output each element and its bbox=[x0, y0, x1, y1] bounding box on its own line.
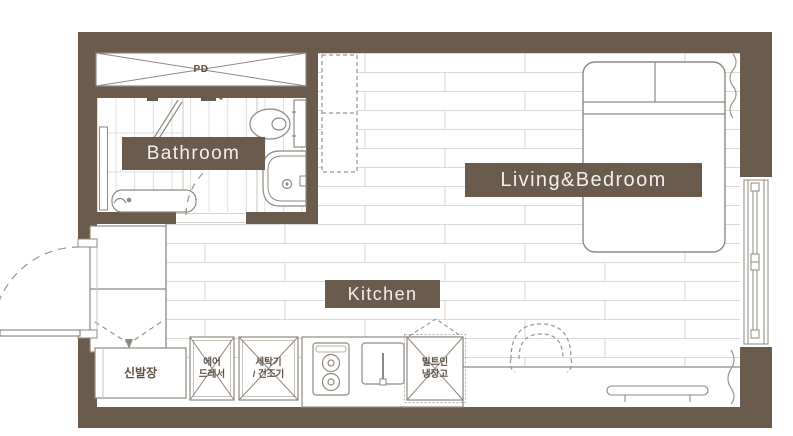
entry-closet bbox=[90, 226, 166, 352]
air-dresser-label-line1: 에어 bbox=[203, 357, 220, 368]
bath-shelf bbox=[100, 127, 108, 210]
wall-bottom bbox=[78, 407, 772, 428]
pd-duct-label: PD bbox=[96, 53, 306, 86]
built-in-fridge-label: 빌트인 냉장고 bbox=[407, 337, 463, 400]
entrance-door-swing bbox=[0, 247, 80, 310]
wall-top bbox=[78, 32, 772, 53]
washbasin bbox=[263, 151, 306, 206]
cooktop bbox=[313, 343, 349, 395]
air-dresser-label: 에어 드레서 bbox=[190, 337, 234, 400]
window bbox=[740, 177, 772, 347]
washer-dryer-label: 세탁기 / 건조기 bbox=[239, 337, 298, 400]
ceiling-unit bbox=[322, 55, 357, 172]
wall-bathroom-right bbox=[306, 32, 318, 224]
air-dresser-label-line2: 드레서 bbox=[199, 369, 225, 380]
wall-bathroom-bottom-left bbox=[78, 212, 176, 224]
built-in-fridge-label-line1: 빌트인 bbox=[422, 357, 448, 368]
bath-bench bbox=[112, 190, 196, 212]
kitchen-sink bbox=[362, 343, 404, 385]
washer-dryer-label-line1: 세탁기 bbox=[255, 357, 281, 368]
floorplan: PD Bathroom Living&Bedroom Kitchen 신발장 에… bbox=[0, 0, 793, 436]
bathroom-label-badge: Bathroom bbox=[122, 137, 265, 170]
entrance-door bbox=[0, 239, 97, 338]
living-bedroom-label-badge: Living&Bedroom bbox=[465, 163, 702, 197]
kitchen-label-badge: Kitchen bbox=[325, 280, 440, 308]
built-in-fridge-label-line2: 냉장고 bbox=[422, 369, 448, 380]
wall-right-lower bbox=[740, 347, 772, 428]
wall-right-upper bbox=[740, 32, 772, 177]
washer-dryer-label-line2: / 건조기 bbox=[253, 369, 285, 380]
shoe-cabinet-label: 신발장 bbox=[95, 348, 186, 398]
bed bbox=[583, 62, 725, 252]
wall-pd-band bbox=[78, 86, 318, 98]
wall-bathroom-bottom-right bbox=[246, 212, 318, 224]
